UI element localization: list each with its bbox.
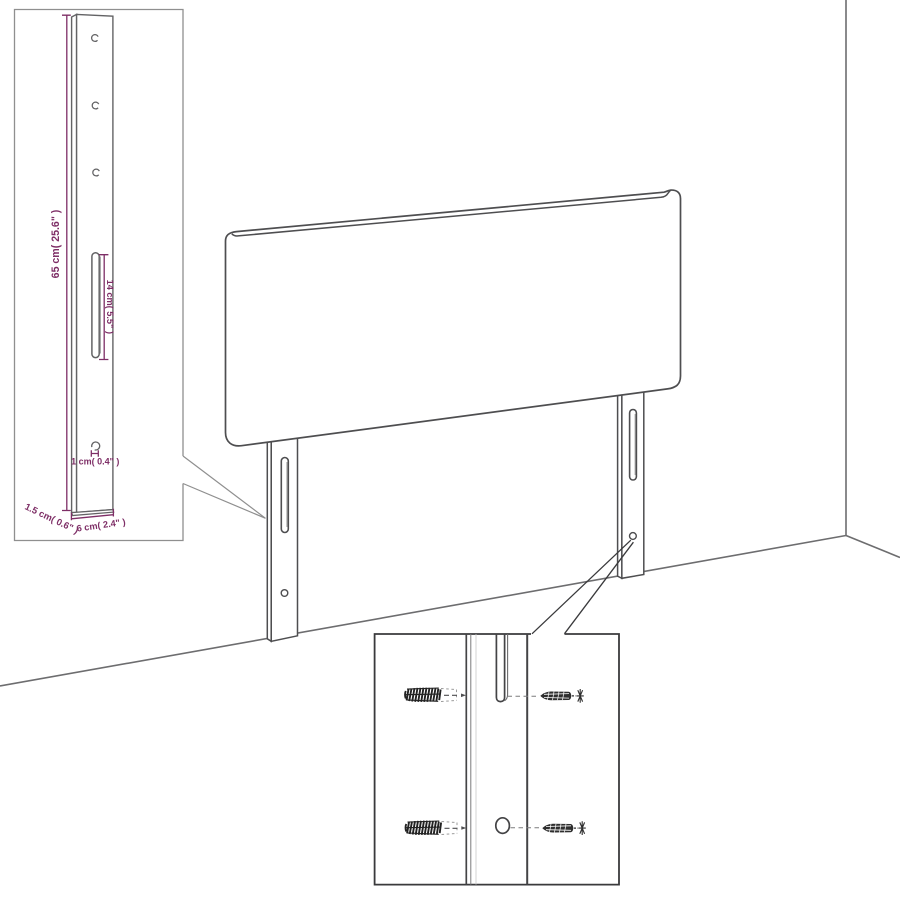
svg-text:1 cm( 0.4" ): 1 cm( 0.4" ) [71, 457, 119, 467]
svg-text:65 cm( 25.6" ): 65 cm( 25.6" ) [50, 210, 62, 279]
svg-text:14 cm( 5.5" ): 14 cm( 5.5" ) [105, 280, 115, 334]
svg-text:6 cm( 2.4" ): 6 cm( 2.4" ) [76, 517, 126, 534]
